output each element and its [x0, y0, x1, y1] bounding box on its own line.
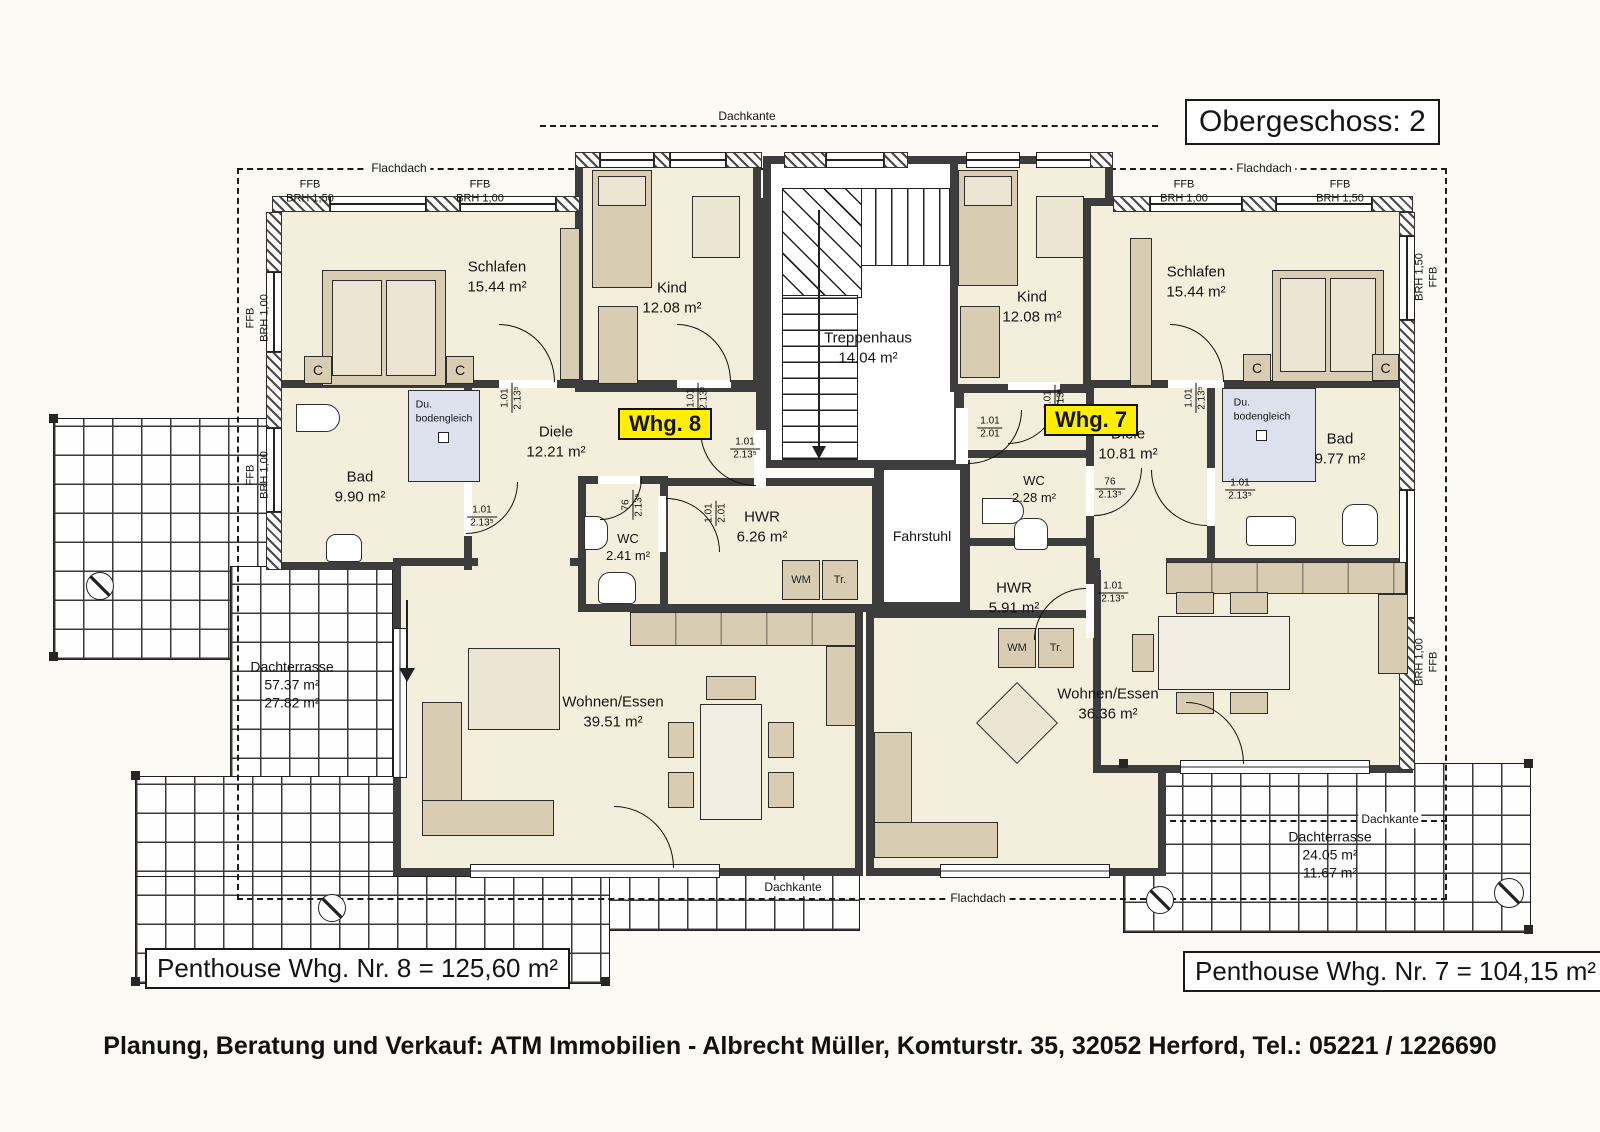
door-dim: 762.13⁵	[1095, 477, 1125, 502]
kitchen-counter	[630, 612, 856, 646]
sofa-small	[598, 306, 638, 384]
dryer: Tr.	[822, 560, 858, 600]
closet-letter: C	[455, 362, 465, 378]
flachdach-label-top-left: Flachdach	[367, 161, 430, 177]
window	[826, 152, 884, 168]
room-area: 2.41 m²	[606, 548, 650, 565]
sink	[296, 404, 340, 432]
washing-machine: WM	[998, 628, 1036, 668]
shower-symbol	[438, 432, 449, 443]
window	[330, 196, 426, 212]
room-name: Bad	[1315, 430, 1366, 450]
dim-width: 1.01	[1225, 478, 1255, 490]
roof-drain	[318, 894, 346, 922]
tr-label: Tr.	[1050, 642, 1062, 654]
stair-direction-arrow	[812, 446, 826, 459]
railing-post	[601, 977, 610, 986]
mattress	[1330, 278, 1376, 372]
sofa-small	[960, 306, 1000, 378]
window	[470, 864, 720, 878]
room-name: Wohnen/Essen	[562, 693, 663, 713]
window-sill-note: FFB BRH 1,00	[244, 294, 273, 342]
door-dim: 1.012.13⁵	[1098, 581, 1128, 606]
mattress	[386, 280, 436, 376]
chair	[768, 772, 794, 808]
window-sill-note: FFB BRH 1,00	[244, 451, 273, 499]
dim-height: 2.13⁵	[1095, 489, 1125, 502]
desk	[1036, 196, 1084, 258]
room-label-fahrstuhl: Fahrstuhl	[893, 527, 951, 545]
railing-post	[49, 414, 58, 423]
apartment-badge-whg7: Whg. 7	[1044, 404, 1138, 436]
room-area: 12.21 m²	[526, 442, 585, 462]
dim-width: 1.01	[1098, 581, 1128, 593]
door-dim: 1.012.13⁵	[500, 383, 525, 413]
dim-width: 1.01	[467, 505, 497, 517]
room-label-schlafen8: Schlafen 15.44 m²	[467, 258, 526, 297]
rug	[468, 648, 560, 730]
room-name: Bad	[335, 468, 386, 488]
room-label-treppenhaus: Treppenhaus 14.04 m²	[824, 329, 912, 368]
room-label-kind7: Kind 12.08 m²	[1002, 288, 1061, 327]
window	[940, 864, 1110, 878]
window	[393, 628, 407, 778]
chair	[1132, 634, 1154, 672]
room-label-terrasse8: Dachterrasse 57.37 m² 27.82 m²	[250, 658, 333, 713]
apartment-badge-whg8: Whg. 8	[618, 408, 712, 440]
room-name: Kind	[1002, 288, 1061, 308]
room-area: 15.44 m²	[1166, 282, 1225, 302]
wall-hatch	[266, 212, 282, 272]
pillow	[964, 176, 1012, 206]
wall-hatch	[1372, 196, 1413, 212]
wall-hatch	[266, 512, 282, 570]
room-area: 27.82 m²	[250, 694, 333, 712]
wall-hatch	[784, 152, 826, 168]
dachkante-label-bottom: Dachkante	[761, 880, 824, 896]
dim-height: 2.13⁵	[1196, 383, 1209, 413]
room-area: 5.91 m²	[989, 598, 1040, 618]
flachdach-label-top-right: Flachdach	[1232, 161, 1295, 177]
window-sill-note: FFB BRH 1,50	[286, 178, 334, 207]
room-area: 12.08 m²	[1002, 307, 1061, 327]
room-name: Diele	[526, 423, 585, 443]
wall-hatch	[266, 352, 282, 428]
dim-width: 76	[621, 490, 633, 520]
room-name: Treppenhaus	[824, 329, 912, 349]
dim-width: 1.01	[730, 437, 760, 449]
wardrobe	[1130, 238, 1152, 386]
wall-hatch	[1399, 212, 1415, 236]
room-area: 14.04 m²	[824, 348, 912, 368]
kitchen-counter	[1378, 594, 1408, 674]
opening-diele8-wohnen8	[478, 558, 570, 570]
drain-arrow-head	[399, 668, 415, 682]
area-box-penthouse8: Penthouse Whg. Nr. 8 = 125,60 m²	[145, 948, 570, 989]
railing-post	[1524, 759, 1533, 768]
room-label-hwr8: HWR 6.26 m²	[737, 508, 788, 547]
dim-width: 76	[1095, 477, 1125, 489]
roof-drain	[86, 572, 114, 600]
chair	[668, 772, 694, 808]
closet-letter: C	[1380, 360, 1390, 376]
dining-table	[700, 704, 762, 820]
window-sill-note: FFB BRH 1,00	[456, 178, 504, 207]
door-gap-wc7	[1086, 466, 1094, 516]
desk	[692, 196, 740, 258]
room-name: Schlafen	[1166, 263, 1225, 283]
tr-label: Tr.	[834, 574, 846, 586]
window-sill-note: BRH 1,50 FFB	[1413, 253, 1442, 301]
pillow	[598, 176, 646, 206]
room-label-terrasse7: Dachterrasse 24.05 m² 11.67 m²	[1288, 828, 1371, 883]
room-area: 12.08 m²	[642, 298, 701, 318]
toilet	[1342, 504, 1378, 546]
dim-height: 2.01	[716, 500, 729, 525]
room-name: Fahrstuhl	[893, 527, 951, 545]
room-label-wohnen8: Wohnen/Essen 39.51 m²	[562, 693, 663, 732]
closet-letter: C	[1252, 360, 1262, 376]
closet-marker: C	[446, 356, 474, 384]
sink	[1246, 516, 1296, 546]
wall-hatch	[556, 196, 580, 212]
mattress	[332, 280, 382, 376]
wall-hatch	[1399, 320, 1415, 490]
room-area: 9.90 m²	[335, 487, 386, 507]
room-label-diele8: Diele 12.21 m²	[526, 423, 585, 462]
stair-walk-line	[818, 210, 820, 448]
room-name: Wohnen/Essen	[1057, 685, 1158, 705]
railing-post	[1524, 925, 1533, 934]
sofa	[874, 822, 998, 858]
kitchen-counter	[826, 646, 856, 726]
closet-marker: C	[1243, 354, 1271, 382]
closet-letter: C	[313, 362, 323, 378]
door-dim: 1.012.13⁵	[1184, 383, 1209, 413]
door-gap-entry7	[956, 408, 968, 464]
chair	[1176, 592, 1214, 614]
dining-table	[1158, 616, 1290, 690]
room-area: 10.81 m²	[1098, 444, 1157, 464]
wall-hatch	[654, 152, 670, 168]
wardrobe	[560, 228, 580, 380]
washing-machine: WM	[782, 560, 820, 600]
toilet	[598, 572, 636, 604]
wall-hatch	[1090, 152, 1113, 168]
railing-post	[131, 771, 140, 780]
kitchen-counter	[1166, 562, 1406, 594]
window-sill-note: FFB BRH 1,50	[1316, 178, 1364, 207]
room-area: 57.37 m²	[250, 676, 333, 694]
dim-width: 1.01	[1184, 383, 1196, 413]
window	[600, 152, 654, 168]
room-name: Dachterrasse	[250, 658, 333, 676]
room-name: HWR	[989, 579, 1040, 599]
area-box-penthouse7: Penthouse Whg. Nr. 7 = 104,15 m²	[1183, 951, 1600, 992]
opening-diele7-wohnen7	[1100, 558, 1166, 570]
window	[670, 152, 726, 168]
closet-marker: C	[304, 356, 332, 384]
window	[966, 152, 1020, 168]
door-gap-hwr7	[1086, 584, 1094, 638]
railing-post	[49, 652, 58, 661]
roof-drain	[1494, 878, 1524, 908]
door-dim: 1.012.13⁵	[467, 505, 497, 530]
toilet	[1014, 518, 1048, 550]
door-dim: 1.012.01	[704, 500, 729, 525]
closet-marker: C	[1372, 354, 1399, 381]
room-area: 15.44 m²	[467, 277, 526, 297]
dachkante-top-line	[540, 125, 1158, 127]
dim-height: 2.13⁵	[633, 490, 646, 520]
wall-hatch	[726, 152, 762, 168]
door-dim: 762.13⁵	[621, 490, 646, 520]
chair	[768, 722, 794, 758]
room-label-bad7: Bad 9.77 m²	[1315, 430, 1366, 469]
wall-hatch	[575, 152, 600, 168]
wall-hatch	[426, 196, 460, 212]
stair-run-down	[782, 295, 858, 460]
room-label-schlafen7: Schlafen 15.44 m²	[1166, 263, 1225, 302]
flachdach-label-bottom: Flachdach	[946, 891, 1009, 907]
room-area: 9.77 m²	[1315, 449, 1366, 469]
dim-height: 2.13⁵	[1225, 490, 1255, 503]
room-name: Dachterrasse	[1288, 828, 1371, 846]
wall-hatch	[1113, 196, 1150, 212]
door-dim: 1.012.13⁵	[730, 437, 760, 462]
toilet	[326, 534, 362, 562]
window	[1036, 152, 1092, 168]
railing-post	[131, 977, 140, 986]
wall-hatch	[1242, 196, 1276, 212]
door-dim: 1.012.13⁵	[1225, 478, 1255, 503]
drain-arrow-line	[406, 600, 408, 670]
door-gap-bad7	[1207, 468, 1215, 526]
room-label-wohnen7: Wohnen/Essen 36.36 m²	[1057, 685, 1158, 724]
wall-hatch	[884, 152, 908, 168]
chair	[668, 722, 694, 758]
door-dim: 1.012.01	[977, 416, 1002, 441]
footer-contact-line: Planung, Beratung und Verkauf: ATM Immob…	[0, 1032, 1600, 1061]
dim-width: 1.01	[977, 416, 1002, 428]
railing-post	[1119, 759, 1128, 768]
room-name: Kind	[642, 279, 701, 299]
room-area: 39.51 m²	[562, 712, 663, 732]
room-label-wc7: WC 2.28 m²	[1012, 473, 1056, 507]
room-area: 2.28 m²	[1012, 490, 1056, 507]
room-area: 36.36 m²	[1057, 704, 1158, 724]
wm-label: WM	[1007, 642, 1027, 654]
room-name: WC	[606, 531, 650, 548]
chair	[1230, 692, 1268, 714]
wm-label: WM	[791, 574, 811, 586]
room-name: WC	[1012, 473, 1056, 490]
room-name: HWR	[737, 508, 788, 528]
shower-label: Du. bodengleich	[416, 398, 473, 425]
mattress	[1280, 278, 1326, 372]
room-name: Schlafen	[467, 258, 526, 278]
roof-drain	[1146, 886, 1174, 914]
stair-winder	[782, 188, 862, 298]
dim-height: 2.13⁵	[730, 449, 760, 462]
floor-plan-page: C C C C WM Tr. WM Tr.	[0, 0, 1600, 1132]
chair	[706, 676, 756, 700]
dachkante-label-top: Dachkante	[714, 109, 779, 125]
room-label-wc8: WC 2.41 m²	[606, 531, 650, 565]
room-label-kind8: Kind 12.08 m²	[642, 279, 701, 318]
room-label-hwr7: HWR 5.91 m²	[989, 579, 1040, 618]
door-gap-hwr8	[658, 496, 666, 552]
dim-height: 2.13⁵	[467, 517, 497, 530]
room-label-bad8: Bad 9.90 m²	[335, 468, 386, 507]
page-title: Obergeschoss: 2	[1185, 99, 1440, 145]
sofa	[422, 800, 554, 836]
sink	[584, 516, 608, 550]
window-sill-note: BRH 1,00 FFB	[1413, 638, 1442, 686]
dim-height: 2.13⁵	[1098, 593, 1128, 606]
dim-height: 2.13⁵	[512, 383, 525, 413]
chair	[1230, 592, 1268, 614]
window-sill-note: FFB BRH 1,00	[1160, 178, 1208, 207]
dim-height: 2.01	[977, 428, 1002, 441]
shower-symbol	[1256, 430, 1267, 441]
room-area: 6.26 m²	[737, 527, 788, 547]
room-area: 11.67 m²	[1288, 864, 1371, 882]
shower-label: Du. bodengleich	[1234, 396, 1291, 423]
dim-width: 1.01	[500, 383, 512, 413]
room-area: 24.05 m²	[1288, 846, 1371, 864]
dim-width: 1.01	[704, 500, 716, 525]
dachkante-label-right: Dachkante	[1358, 812, 1421, 828]
